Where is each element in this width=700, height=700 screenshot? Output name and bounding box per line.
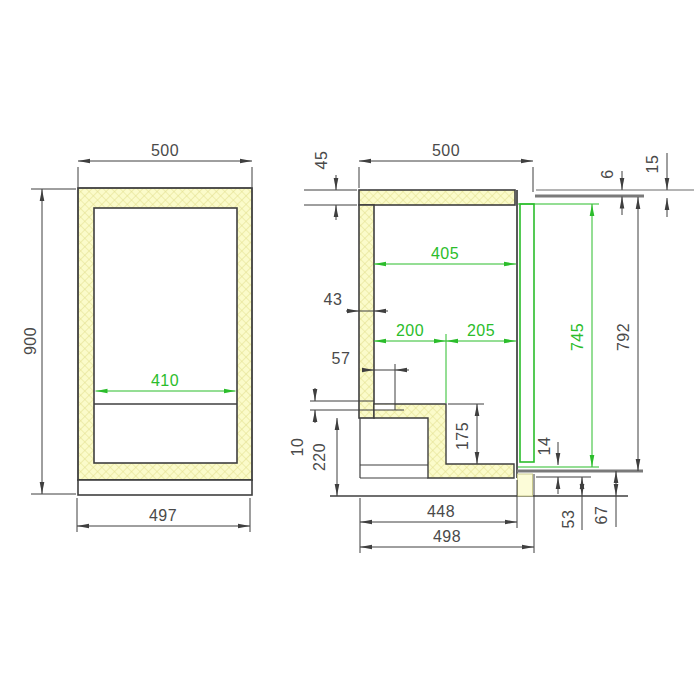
side-top-panel <box>359 190 515 205</box>
dim-side-bottom-detail-a: 53 <box>560 477 582 530</box>
dim-side-floor-offset-label: 10 <box>289 438 306 457</box>
front-cabinet-body <box>78 188 252 495</box>
dim-side-door-bottom-gap-label: 14 <box>536 437 553 456</box>
dim-side-machine-recess-height-label: 220 <box>311 443 328 471</box>
dim-side-lid-gap-label: 6 <box>599 169 616 178</box>
dim-side-interior-depth: 405 <box>374 245 516 264</box>
dim-side-bottom-detail-b-label: 67 <box>593 506 610 525</box>
cabinet-section-drawing: 500 900 410 497 <box>0 0 700 700</box>
dim-front-top-width-label: 500 <box>151 142 179 159</box>
dim-side-front-overhang: 15 <box>644 153 667 217</box>
dim-side-wall-thickness-label: 43 <box>324 291 343 308</box>
dim-side-lid-gap: 6 <box>599 169 622 215</box>
dim-side-top-depth-label: 500 <box>432 142 460 159</box>
side-bottom-step <box>374 404 514 478</box>
dim-side-bottom-detail-a-label: 53 <box>560 510 577 529</box>
dim-side-overall-depth-label: 498 <box>433 528 461 545</box>
dim-side-front-overhang-label: 15 <box>644 155 661 174</box>
dim-front-height-label: 900 <box>22 327 39 355</box>
dim-front-base-width-label: 497 <box>149 507 177 524</box>
dim-front-base-width: 497 <box>77 498 250 532</box>
dim-side-step-height: 175 <box>448 404 484 464</box>
dim-side-top-thickness-label: 45 <box>313 151 330 170</box>
dim-side-bottom-detail-b: 67 <box>593 471 616 527</box>
dim-side-top-thickness: 45 <box>304 151 357 220</box>
dim-side-step-height-label: 175 <box>454 422 471 450</box>
dim-side-wall-thickness: 43 <box>324 291 388 311</box>
dim-side-depth-back-label: 205 <box>467 322 495 339</box>
dim-front-height: 900 <box>22 189 76 494</box>
dim-side-door-liner-height: 745 <box>569 204 592 467</box>
dim-side-door-height: 792 <box>615 197 638 471</box>
dim-side-depth-front-label: 200 <box>396 322 424 339</box>
side-view: 45 500 6 15 405 43 <box>289 142 694 553</box>
dim-side-depth-to-door-inner-label: 448 <box>427 503 455 520</box>
front-base-plinth <box>78 480 252 495</box>
dim-side-door-liner-height-label: 745 <box>569 323 586 351</box>
dim-side-floor-offset: 10 <box>289 388 404 456</box>
front-interior-cavity <box>94 208 237 463</box>
dim-side-top-depth: 500 <box>359 142 533 192</box>
side-door-bottom-cap <box>518 474 533 496</box>
dim-side-door-height-label: 792 <box>615 323 632 351</box>
side-door-liner-outline <box>520 204 534 462</box>
dim-front-top-width: 500 <box>78 142 252 187</box>
technical-drawing-page: 500 900 410 497 <box>0 0 700 700</box>
side-step-notch <box>375 405 395 410</box>
dim-side-interior-depth-label: 405 <box>431 245 459 262</box>
dim-side-machine-recess-height: 220 <box>311 418 337 496</box>
dim-side-recess-inset-label: 57 <box>332 350 351 367</box>
dim-front-interior-width-label: 410 <box>151 372 179 389</box>
side-cabinet-body <box>330 190 694 496</box>
front-view: 500 900 410 497 <box>22 142 252 532</box>
dim-side-door-bottom-gap: 14 <box>536 437 591 494</box>
